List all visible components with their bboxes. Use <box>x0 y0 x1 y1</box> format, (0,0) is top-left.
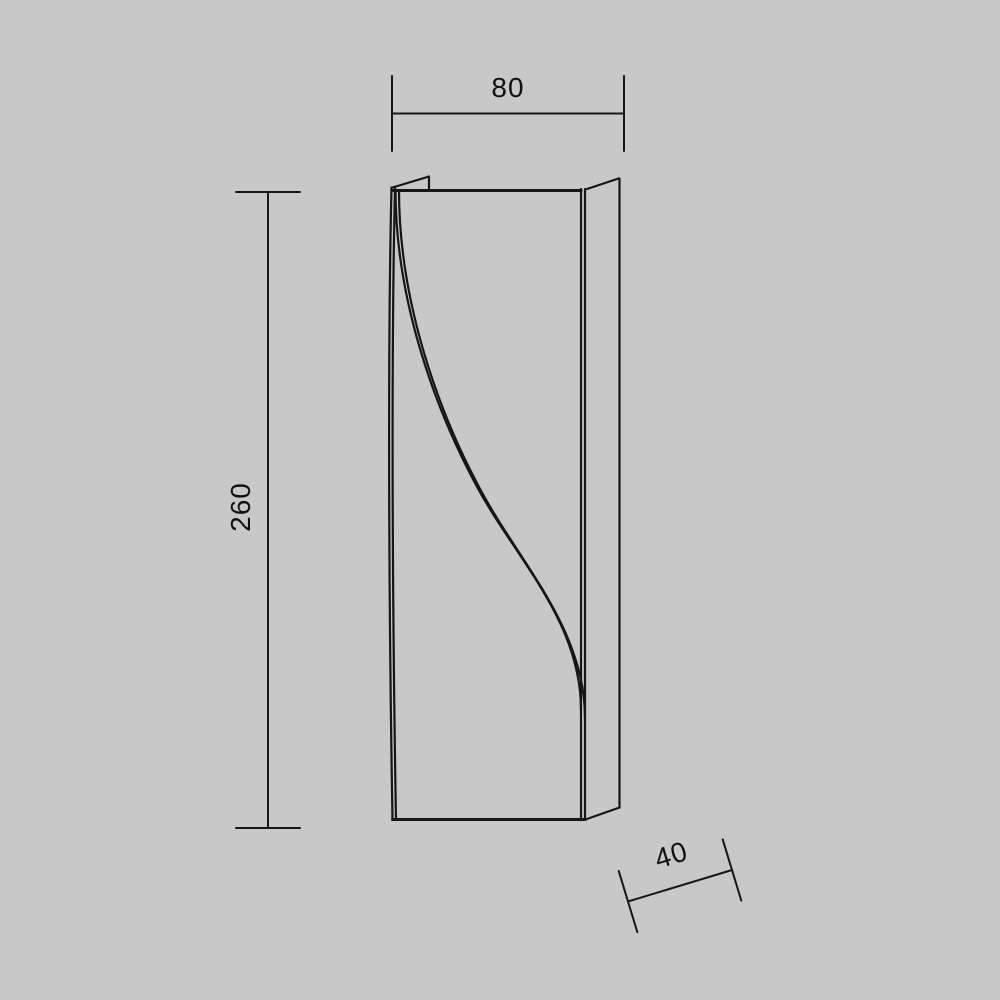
dimension-depth-label: 40 <box>651 835 692 874</box>
dimension-depth-line <box>628 870 732 902</box>
lamp-outline <box>389 177 619 820</box>
lamp-left-edge-inner <box>393 189 396 820</box>
dimension-depth-tick-left <box>619 871 638 932</box>
dimension-height: 260 <box>225 192 300 828</box>
drawing-canvas: 80 260 40 <box>0 0 1000 1000</box>
lamp-side-top-edge <box>586 179 619 190</box>
lamp-top-fold-flap-diagonal <box>393 177 430 188</box>
lamp-dimension-diagram: 80 260 40 <box>0 0 1000 1000</box>
lamp-twist-seam-curve-inner <box>399 191 585 719</box>
dimension-depth-tick-right <box>723 839 742 900</box>
lamp-twist-seam-curve-outer <box>396 190 582 710</box>
dimension-width-label: 80 <box>491 72 524 103</box>
dimension-width: 80 <box>392 72 624 151</box>
dimension-depth: 40 <box>619 835 742 932</box>
lamp-side-bottom-edge <box>586 808 620 820</box>
dimension-height-label: 260 <box>225 482 256 532</box>
